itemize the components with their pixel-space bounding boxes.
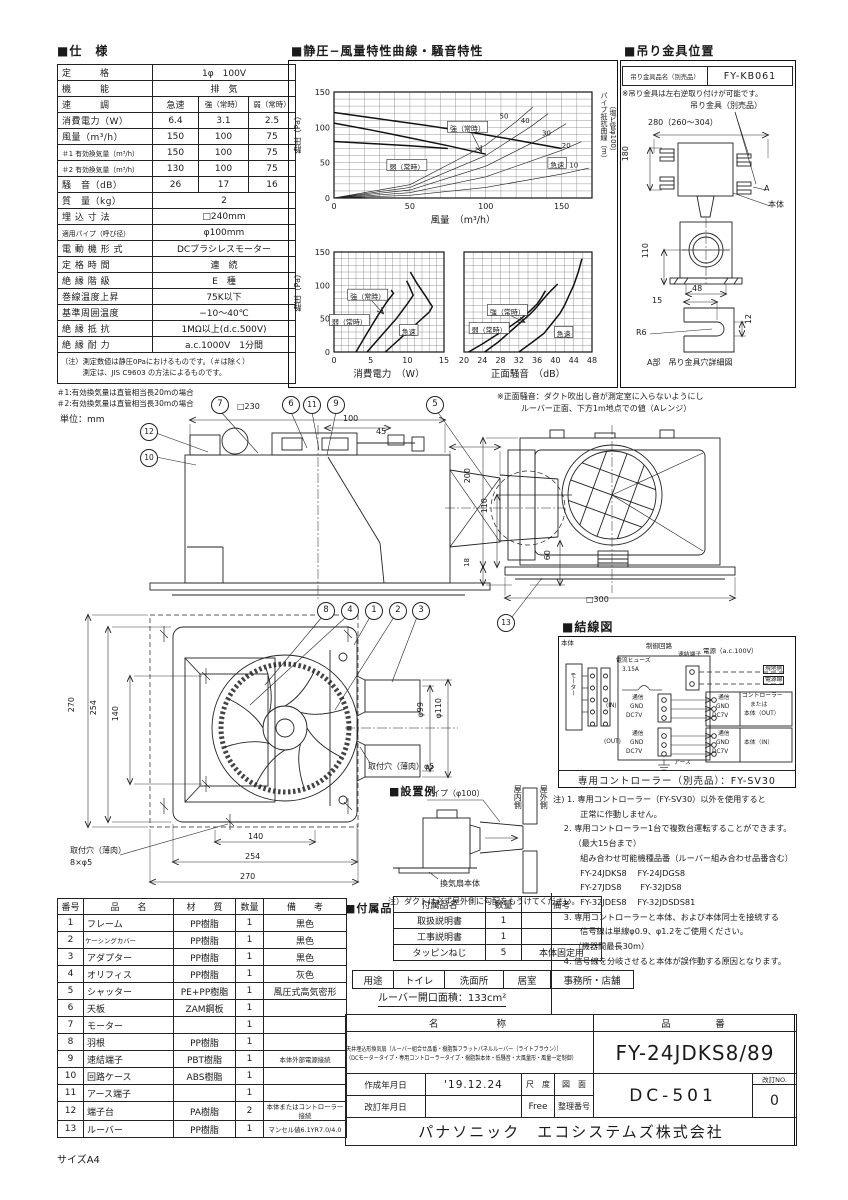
pipe-curve-label-1: パイプ抵抗曲線（m） bbox=[600, 92, 608, 162]
svg-text:50: 50 bbox=[500, 113, 509, 121]
wiring-site-label-1: 現地側 bbox=[763, 665, 784, 674]
wiring-note-line: 組み合わせ可能機種品番（ルーバー組み合わせ品番含む） bbox=[553, 851, 797, 866]
dwg-number: DC-501 bbox=[593, 1073, 753, 1118]
spec-row: 電 動 機 形 式DCブラシレスモーター bbox=[58, 241, 296, 257]
wiring-fuse-rating: 3.15A bbox=[622, 667, 639, 674]
svg-text:50: 50 bbox=[320, 159, 330, 168]
spec-title: ■仕 様 bbox=[57, 42, 108, 59]
wiring-ctl-2: または bbox=[750, 702, 767, 709]
spec-row: 質 量（kg）2 bbox=[58, 193, 296, 209]
wiring-gnd-in: GND bbox=[630, 704, 643, 711]
title-block-name-header: 名 称 bbox=[345, 1014, 594, 1032]
callout-2: 2 bbox=[389, 602, 407, 620]
wiring-in-label: (IN) bbox=[606, 703, 617, 710]
wiring-com-out: 通信 bbox=[632, 731, 644, 738]
spec-row: 絶 縁 耐 力a.c.1000V 1分間 bbox=[58, 337, 296, 353]
front-hole-label-1: 取付穴（薄肉） bbox=[70, 846, 126, 855]
svg-text:150: 150 bbox=[315, 248, 330, 257]
svg-text:0: 0 bbox=[325, 194, 330, 203]
svg-text:28: 28 bbox=[495, 356, 505, 365]
front-hole-label-2: 8×φ5 bbox=[70, 858, 92, 867]
spec-row: 埋 込 寸 法□240mm bbox=[58, 209, 296, 225]
spec-row: 風量（m³/h）15010075 bbox=[58, 129, 296, 145]
wiring-com-r1: 通信 bbox=[718, 695, 730, 702]
wiring-out-label: (OUT) bbox=[604, 739, 621, 746]
side-dim-45: 45 bbox=[376, 427, 386, 436]
scale-label: 尺 度 bbox=[521, 1073, 555, 1096]
revised-label: 改訂年月日 bbox=[345, 1095, 426, 1118]
callout-12: 12 bbox=[140, 423, 158, 441]
title-block: 名 称 品 番 天井埋込形換気扇（ルーバー組合せ品番・樹脂製フラットパネルルーバ… bbox=[345, 1014, 795, 1146]
front-dim-254v: 254 bbox=[89, 700, 98, 715]
svg-text:正面騒音 （dB）: 正面騒音 （dB） bbox=[491, 368, 565, 380]
install-body-label: 換気扇本体 bbox=[440, 879, 480, 888]
rear-dim-200: 200 bbox=[463, 468, 472, 483]
pipe-curve-label-2: （塩ビ管φ100） bbox=[609, 102, 617, 155]
spec-row: 適用パイプ（呼び径）φ100mm bbox=[58, 225, 296, 241]
callout-6: 6 bbox=[282, 396, 300, 414]
svg-text:30: 30 bbox=[542, 129, 551, 137]
wiring-dc-r1: DC7V bbox=[712, 713, 728, 720]
callout-4: 4 bbox=[341, 602, 359, 620]
svg-text:40: 40 bbox=[550, 356, 560, 365]
callout-7: 7 bbox=[211, 396, 229, 414]
parts-row: 11アース端子1 bbox=[58, 1085, 347, 1102]
spec-table: 定 格1φ 100V機 能排 気速 調急速強（常時）弱（常時）消費電力（W）6.… bbox=[57, 64, 296, 384]
front-dim-270v: 270 bbox=[67, 697, 76, 712]
dwg-label-2: 整理番号 bbox=[554, 1095, 594, 1118]
svg-text:100: 100 bbox=[315, 123, 330, 132]
wiring-power-label: 電源（a.c.100V） bbox=[703, 648, 758, 655]
created-label: 作成年月日 bbox=[345, 1073, 426, 1096]
parts-row: 13ルーバーPP樹脂1マンセル値6.1YR7.0/4.0 bbox=[58, 1121, 347, 1138]
parts-row: 7モーター1 bbox=[58, 1017, 347, 1034]
accessory-row: タッピンねじ5本体固定用 bbox=[394, 945, 602, 961]
wiring-note-line: 正常に作動しません。 bbox=[553, 807, 797, 822]
bracket-title: ■吊り金具位置 bbox=[624, 42, 714, 59]
product-name-line1: 天井埋込形換気扇（ルーバー組合せ品番・樹脂製フラットパネルルーバー（ライトブラウ… bbox=[346, 1044, 562, 1053]
wiring-note-line: FY-27JDS8 FY-32JDS8 bbox=[553, 880, 797, 895]
svg-text:5: 5 bbox=[368, 356, 373, 365]
svg-text:150: 150 bbox=[554, 202, 569, 211]
svg-text:弱（常時）: 弱（常時） bbox=[332, 318, 367, 327]
wiring-right-in-label: 本体（IN） bbox=[744, 740, 773, 747]
install-outside-label: 屋外側 bbox=[539, 785, 548, 809]
front-dim-270h: 270 bbox=[240, 872, 255, 881]
title-block-name: 天井埋込形換気扇（ルーバー組合せ品番・樹脂製フラットパネルルーバー（ライトブラウ… bbox=[345, 1031, 594, 1074]
product-name-line2: （DCモータータイプ・専用コントローラータイプ・樹脂製本体・低騒音・大風量形・風… bbox=[346, 1053, 577, 1062]
part-number: FY-24JDKS8/89 bbox=[593, 1031, 797, 1074]
created-date: '19.12.24 bbox=[425, 1073, 522, 1096]
wiring-fuse-label: 電流ヒューズ bbox=[616, 658, 651, 665]
svg-text:15: 15 bbox=[439, 356, 449, 365]
wiring-ctl-3: 本体（OUT） bbox=[744, 711, 780, 718]
svg-text:20: 20 bbox=[459, 356, 469, 365]
wiring-earth-label: アース bbox=[674, 760, 691, 767]
parts-row: 2ケーシングカバーPP樹脂1黒色 bbox=[58, 932, 347, 949]
rear-dim-18: 18 bbox=[463, 558, 471, 567]
page-size-label: サイズA4 bbox=[57, 1155, 100, 1167]
side-dim-100: 100 bbox=[343, 414, 358, 423]
parts-row: 9速結端子PBT樹脂1本体外部電源接続 bbox=[58, 1051, 347, 1068]
wiring-ctl-1: コントローラー bbox=[742, 693, 783, 700]
install-pipe-label: パイプ（φ100） bbox=[424, 789, 485, 798]
usage-table: 用途トイレ洗面所居室事務所・店舗 bbox=[352, 970, 634, 989]
svg-text:風量 （m³/h）: 風量 （m³/h） bbox=[430, 214, 495, 226]
spec-row: 巻線温度上昇75K以下 bbox=[58, 289, 296, 305]
accessories-table: 付属品名数量備考取扱説明書1工事説明書1タッピンねじ5本体固定用 bbox=[393, 896, 602, 961]
svg-text:36: 36 bbox=[532, 356, 542, 365]
wiring-dc-out: DC7V bbox=[626, 749, 642, 756]
wiring-note-line: FY-24JDKS8 FY-24JDGS8 bbox=[553, 866, 797, 881]
svg-text:0: 0 bbox=[331, 356, 336, 365]
rear-view-drawing bbox=[460, 425, 760, 640]
svg-text:40: 40 bbox=[521, 117, 530, 125]
wiring-note-line: 2. 専用コントローラー1台で複数台運転することができます。 bbox=[553, 821, 797, 836]
spec-row: 機 能排 気 bbox=[58, 81, 296, 97]
svg-text:急速: 急速 bbox=[550, 160, 564, 169]
charts-title: ■静圧−風量特性曲線・騒音特性 bbox=[291, 42, 483, 59]
wiring-site-label-2: 電源線 bbox=[763, 676, 784, 685]
svg-text:0: 0 bbox=[325, 348, 330, 357]
front-hole-label-r: 取付穴（薄肉）φ5 bbox=[368, 762, 434, 771]
svg-text:44: 44 bbox=[569, 356, 579, 365]
svg-text:100: 100 bbox=[315, 281, 330, 290]
chart2-ylabel: 静圧（Pa） bbox=[293, 270, 302, 311]
wiring-motor-label: モーター bbox=[568, 672, 575, 696]
spec-row: 基準周囲温度−10～40℃ bbox=[58, 305, 296, 321]
accessory-row: 工事説明書1 bbox=[394, 929, 602, 945]
svg-text:弱（常時）: 弱（常時） bbox=[389, 162, 424, 171]
svg-text:弱（常時）: 弱（常時） bbox=[472, 326, 507, 335]
svg-text:消費電力 （W）: 消費電力 （W） bbox=[353, 368, 424, 380]
svg-text:150: 150 bbox=[315, 88, 330, 97]
callout-13: 13 bbox=[497, 614, 515, 632]
callout-1: 1 bbox=[365, 602, 383, 620]
bracket-part-no: FY-KB061 bbox=[707, 66, 793, 86]
spec-row: 定 格 時 間連 続 bbox=[58, 257, 296, 273]
svg-text:強（常時）: 強（常時） bbox=[350, 292, 385, 301]
company-name: パナソニック エコシステムズ株式会社 bbox=[345, 1117, 797, 1146]
chart1-ylabel: 静圧（Pa） bbox=[293, 112, 302, 153]
spec-row: 定 格1φ 100V bbox=[58, 65, 296, 81]
wiring-com-in: 通信 bbox=[632, 695, 644, 702]
front-dim-140h: 140 bbox=[248, 832, 263, 841]
callout-8: 8 bbox=[317, 602, 335, 620]
front-dim-phi110: φ110 bbox=[434, 698, 443, 719]
svg-text:急速: 急速 bbox=[402, 328, 416, 337]
svg-text:10: 10 bbox=[402, 356, 412, 365]
wiring-dc-in: DC7V bbox=[626, 713, 642, 720]
title-block-pn-header: 品 番 bbox=[593, 1014, 797, 1032]
wiring-gnd-r1: GND bbox=[716, 704, 729, 711]
rev-number: 0 bbox=[752, 1084, 797, 1118]
wiring-circuit-label: 制御回路 bbox=[646, 643, 672, 650]
scale-value: Free bbox=[521, 1095, 555, 1118]
wiring-terminal-label: 速結端子 bbox=[678, 652, 701, 659]
callout-10: 10 bbox=[140, 449, 158, 467]
svg-text:急速: 急速 bbox=[557, 330, 571, 339]
wiring-gnd-out: GND bbox=[630, 740, 643, 747]
callout-9: 9 bbox=[327, 396, 345, 414]
spec-row: 消費電力（W）6.43.12.5 bbox=[58, 113, 296, 129]
parts-row: 5シャッターPE+PP樹脂1風圧式高気密形 bbox=[58, 983, 347, 1000]
svg-text:20: 20 bbox=[562, 142, 571, 150]
svg-text:32: 32 bbox=[514, 356, 524, 365]
drawing-sheet: ■仕 様 ■静圧−風量特性曲線・騒音特性 ■吊り金具位置 ■結線図 ■設置例 ■… bbox=[0, 0, 848, 1200]
charts-canvas: 050100150050100150風量 （m³/h）強（常時）弱（常時）急速5… bbox=[290, 62, 616, 386]
parts-row: 4オリフィスPP樹脂1灰色 bbox=[58, 966, 347, 983]
svg-text:強（常時）: 強（常時） bbox=[490, 308, 525, 317]
svg-text:48: 48 bbox=[587, 356, 597, 365]
louver-area: ルーバー開口面積：133cm² bbox=[378, 993, 506, 1007]
bracket-drawing bbox=[620, 98, 795, 360]
accessory-row: 取扱説明書1 bbox=[394, 913, 602, 929]
front-dim-phi99: φ99 bbox=[416, 702, 425, 717]
parts-row: 1フレームPP樹脂1黒色 bbox=[58, 915, 347, 932]
svg-text:50: 50 bbox=[320, 315, 330, 324]
wiring-note-line: （最大15台まで） bbox=[553, 836, 797, 851]
spec-row: 絶 縁 抵 抗1MΩ以上(d.c.500V) bbox=[58, 321, 296, 337]
spec-row: ＃1 有効換気量（m³/h）15010075 bbox=[58, 145, 296, 161]
front-dim-254h: 254 bbox=[245, 852, 260, 861]
wiring-dc-r2: DC7V bbox=[712, 749, 728, 756]
spec-row: 速 調急速強（常時）弱（常時） bbox=[58, 97, 296, 113]
svg-text:24: 24 bbox=[477, 356, 487, 365]
parts-row: 10回路ケースABS樹脂1 bbox=[58, 1068, 347, 1085]
parts-table: 番号品 名材 質数量備 考1フレームPP樹脂1黒色2ケーシングカバーPP樹脂1黒… bbox=[57, 898, 347, 1138]
spec-row: 騒 音（dB）261716 bbox=[58, 177, 296, 193]
parts-row: 3アダプターPP樹脂1黒色 bbox=[58, 949, 347, 966]
wiring-body-label: 本体 bbox=[561, 640, 574, 647]
wiring-gnd-r2: GND bbox=[716, 740, 729, 747]
parts-row: 8羽根PP樹脂1 bbox=[58, 1034, 347, 1051]
svg-text:強（常時）: 強（常時） bbox=[450, 124, 485, 133]
callout-5: 5 bbox=[426, 396, 444, 414]
front-dim-140v: 140 bbox=[111, 706, 120, 721]
parts-row: 6天板ZAM鋼板1 bbox=[58, 1000, 347, 1017]
parts-row: 12端子台PA樹脂2本体またはコントローラー接続 bbox=[58, 1102, 347, 1121]
wiring-controller-bar: 専用コントローラー（別売品）：FY-SV30 bbox=[558, 770, 796, 789]
spec-row: 絶 縁 階 級E 種 bbox=[58, 273, 296, 289]
bracket-part-label: 吊り金具品名（別売品） bbox=[622, 66, 708, 86]
rear-dim-300: □300 bbox=[586, 595, 609, 604]
svg-text:50: 50 bbox=[405, 202, 415, 211]
revised-date bbox=[425, 1095, 522, 1118]
callout-3: 3 bbox=[412, 602, 430, 620]
callout-11: 11 bbox=[303, 396, 321, 414]
wiring-com-r2: 通信 bbox=[718, 731, 730, 738]
svg-text:10: 10 bbox=[569, 161, 578, 169]
wiring-note-line: 注) 1. 専用コントローラー（FY-SV30）以外を使用すると bbox=[553, 792, 797, 807]
spec-row: ＃2 有効換気量（m³/h）13010075 bbox=[58, 161, 296, 177]
rear-dim-110: 110 bbox=[480, 498, 489, 513]
install-inside-label: 屋内側 bbox=[513, 785, 522, 809]
svg-text:100: 100 bbox=[478, 202, 493, 211]
dwg-label-1: 図 面 bbox=[554, 1073, 594, 1096]
side-dim-230: □230 bbox=[237, 402, 260, 411]
svg-text:0: 0 bbox=[331, 202, 336, 211]
